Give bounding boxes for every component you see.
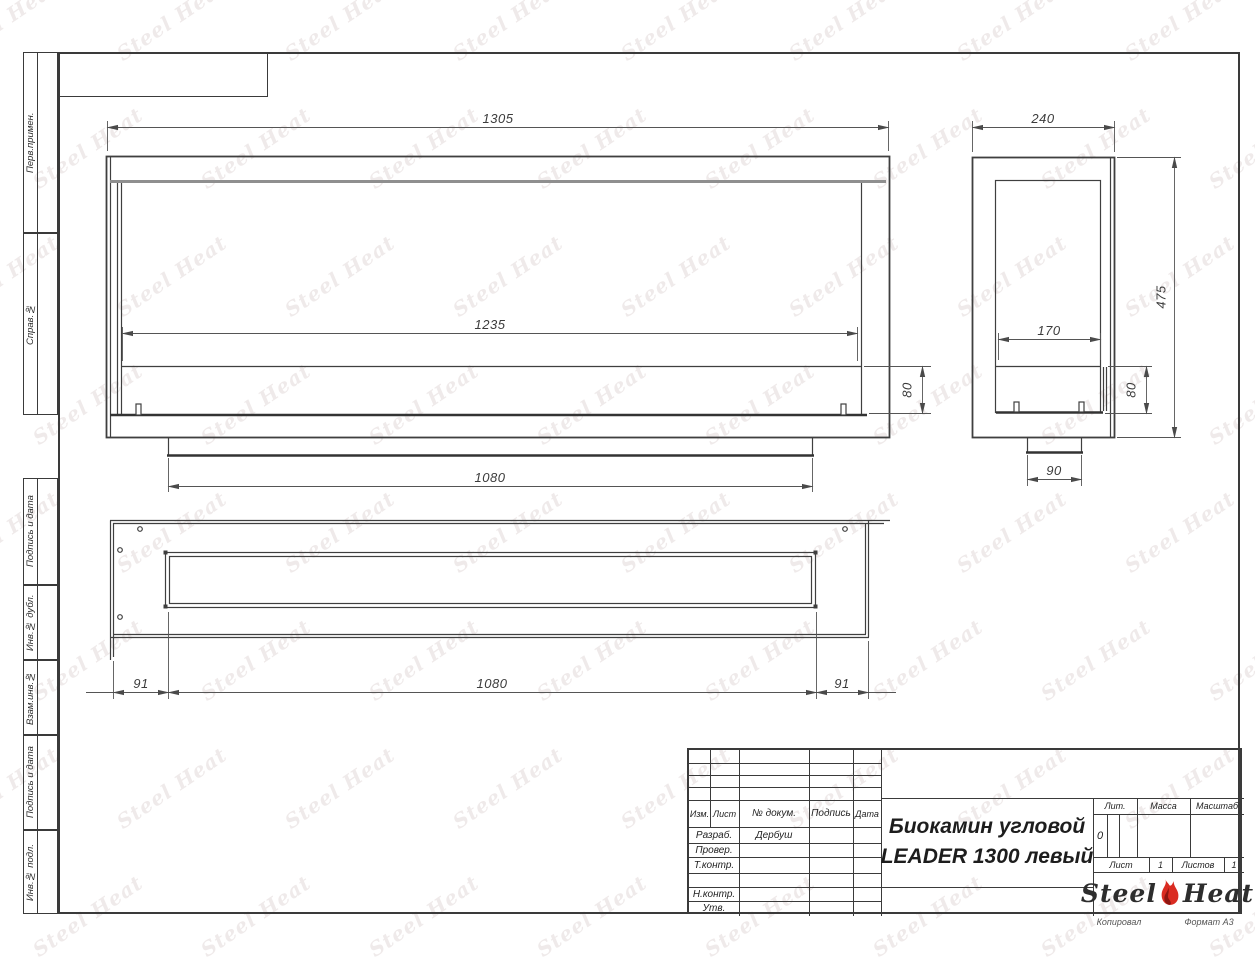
- side-strip-box: Инв.№ дубл.: [23, 585, 58, 660]
- side-strip-box: Перв.примен.: [23, 52, 58, 233]
- steelheat-logo: Steel Heat: [1093, 872, 1242, 914]
- dim-front-opening-width: 1235: [475, 317, 506, 332]
- side-strip-label: Инв.№ подл.: [24, 831, 37, 913]
- col-izm: Изм.: [689, 800, 710, 827]
- side-strip-box: Взам.инв.№: [23, 660, 58, 735]
- dim-side-foot-width: 90: [1046, 463, 1061, 478]
- sheet-number: 1: [1149, 857, 1172, 872]
- mass-label: Масса: [1137, 798, 1190, 814]
- dim-front-width: 1305: [483, 111, 514, 126]
- side-strip-label: Взам.инв.№: [24, 661, 37, 734]
- side-strip-box: Инв.№ подл.: [23, 830, 58, 914]
- scale-label: Масштаб: [1190, 798, 1244, 814]
- logo-heat-text: Heat: [1183, 879, 1254, 908]
- top-left-box: [58, 52, 268, 97]
- sheet-label: Лист: [1093, 857, 1149, 872]
- plan-view: [110, 521, 890, 661]
- format-label: Формат А3: [1184, 917, 1233, 927]
- dim-side-height: 475: [1154, 285, 1169, 308]
- col-sign: Подпись: [809, 800, 853, 827]
- side-view: [973, 158, 1115, 453]
- lit-value: 0: [1093, 814, 1107, 857]
- logo-steel-text: Steel: [1081, 879, 1157, 908]
- side-strip-box: Подпись и дата: [23, 478, 58, 585]
- row-label-utv: Утв.: [689, 901, 739, 916]
- side-strip-box: Подпись и дата: [23, 735, 58, 830]
- lit-label: Лит.: [1093, 798, 1137, 814]
- dim-plan-left-offset: 91: [133, 676, 148, 691]
- drawing-page: Steel HeatSteel HeatSteel HeatSteel Heat…: [0, 0, 1255, 970]
- row-label-prover: Провер.: [689, 843, 739, 857]
- copied-label: Копировал: [1097, 917, 1142, 927]
- col-list: Лист: [710, 800, 739, 827]
- dim-front-burner-height: 80: [900, 382, 915, 397]
- side-strip-label: Подпись и дата: [24, 479, 37, 584]
- row-label-nkontr: Н.контр.: [689, 887, 739, 901]
- title-block: Изм. Лист № докум. Подпись Дата Разраб. …: [687, 748, 1242, 914]
- dim-plan-right-offset: 91: [834, 676, 849, 691]
- doc-title-line1: Биокамин угловой: [881, 812, 1093, 842]
- sheets-total: 1: [1224, 857, 1244, 872]
- col-doc: № докум.: [739, 800, 809, 827]
- side-strip-box: Справ.№: [23, 233, 58, 415]
- row-label-razrab: Разраб.: [689, 827, 739, 843]
- sheets-label: Листов: [1172, 857, 1224, 872]
- row-label-tkontr: Т.контр.: [689, 857, 739, 873]
- side-strip-label: Подпись и дата: [24, 736, 37, 829]
- side-strip-label: Справ.№: [24, 234, 37, 414]
- col-date: Дата: [853, 800, 881, 827]
- side-strip-label: Инв.№ дубл.: [24, 586, 37, 659]
- dim-front-base-width: 1080: [475, 470, 506, 485]
- dim-side-depth: 240: [1031, 111, 1054, 126]
- doc-title-line2: LEADER 1300 левый: [881, 842, 1093, 872]
- flame-icon: [1159, 878, 1181, 908]
- side-strip-label: Перв.примен.: [24, 53, 37, 232]
- dim-side-burner-height: 80: [1124, 382, 1139, 397]
- row-value-razrab: Дербуш: [739, 827, 809, 843]
- front-view: [107, 157, 890, 456]
- dim-side-opening-depth: 170: [1037, 323, 1060, 338]
- dim-plan-slot-width: 1080: [477, 676, 508, 691]
